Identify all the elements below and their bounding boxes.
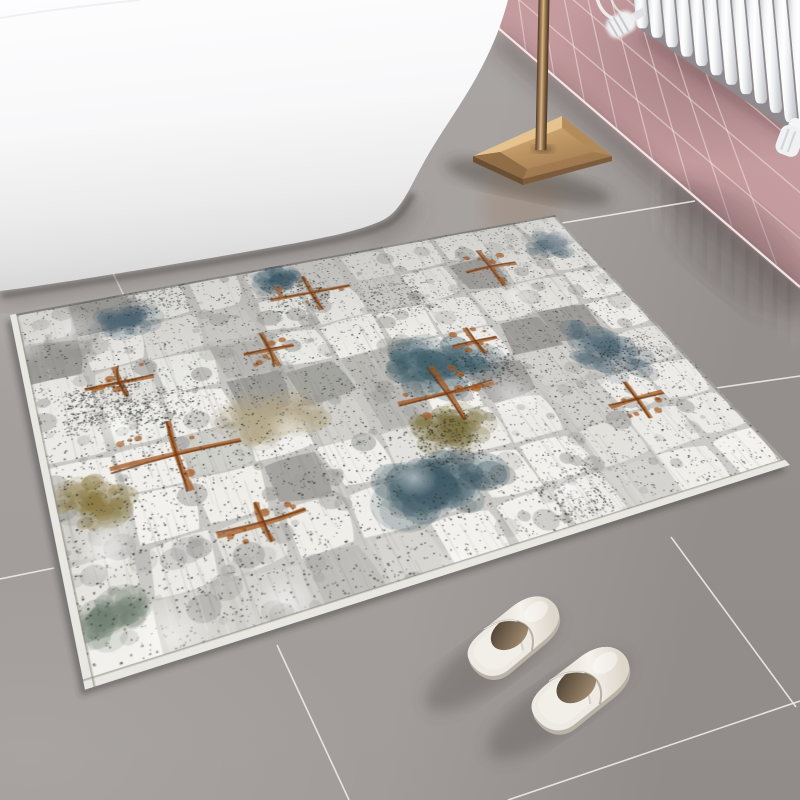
bathroom-photo [0,0,800,800]
white-slippers-pair [0,0,800,800]
